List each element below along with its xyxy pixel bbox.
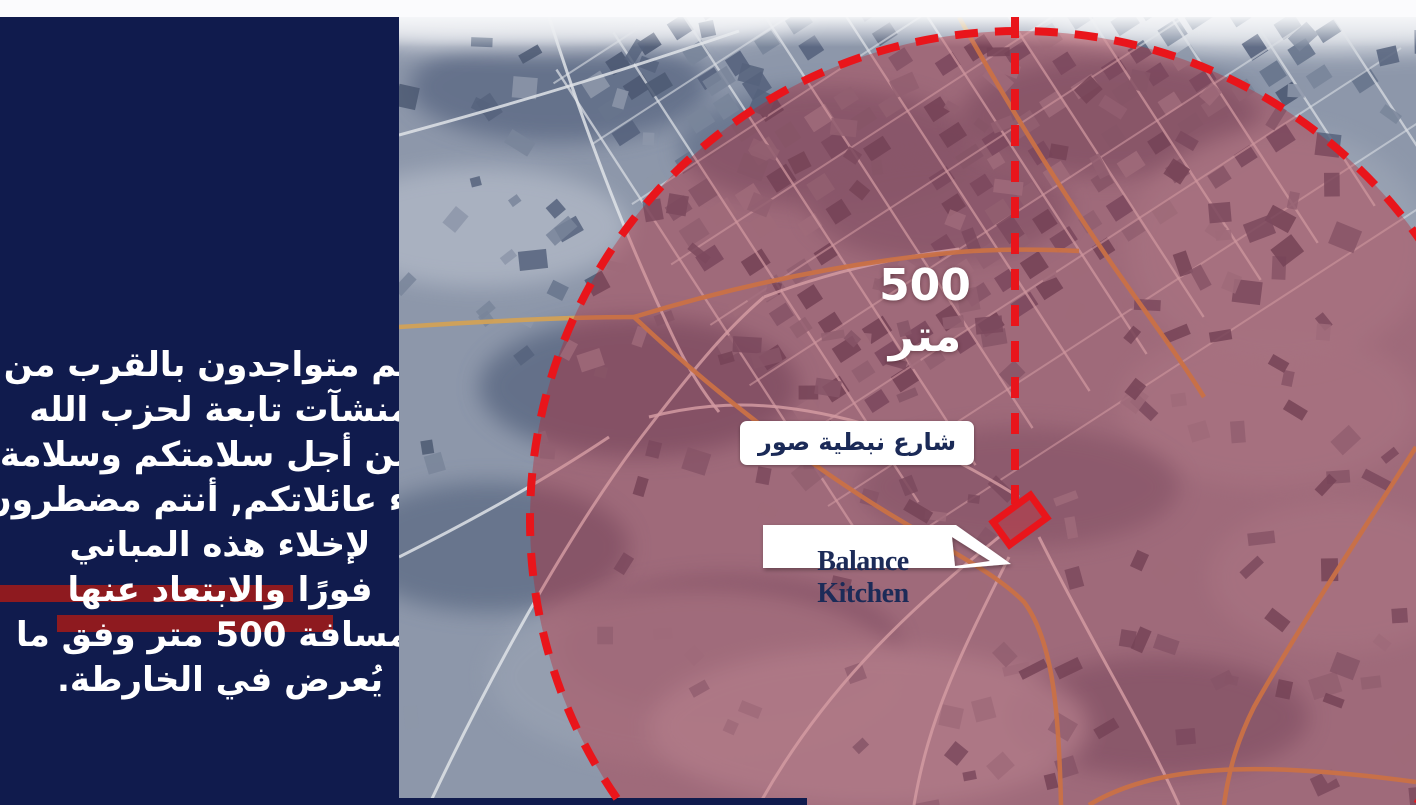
warning-line: لمسافة 500 متر وفق ما [0, 613, 399, 658]
warning-line: أبناء عائلاتكم, أنتم مضطرون [0, 478, 399, 523]
cloud-band [399, 17, 1416, 47]
warning-line: أنتم متواجدون بالقرب من [0, 343, 399, 388]
satellite-map: 500 متر شارع نبطية صور Balance Kitchen [399, 17, 1416, 805]
warning-text-panel: أنتم متواجدون بالقرب من منشآت تابعة لحزب… [0, 17, 399, 805]
map-terrain [399, 17, 1416, 805]
warning-line: فورًا والابتعاد عنها [0, 568, 399, 613]
evacuation-warning-graphic: 500 متر شارع نبطية صور Balance Kitchen أ… [0, 0, 1416, 805]
warning-line: منشآت تابعة لحزب الله [0, 388, 399, 433]
top-white-strip [0, 0, 1416, 17]
warning-line: فمن أجل سلامتكم وسلامة [0, 433, 399, 478]
warning-line: لإخلاء هذه المباني [0, 523, 399, 568]
warning-text: أنتم متواجدون بالقرب من منشآت تابعة لحزب… [0, 343, 399, 703]
bottom-navy-strip [399, 798, 807, 805]
warning-line: يُعرض في الخارطة. [0, 658, 399, 703]
